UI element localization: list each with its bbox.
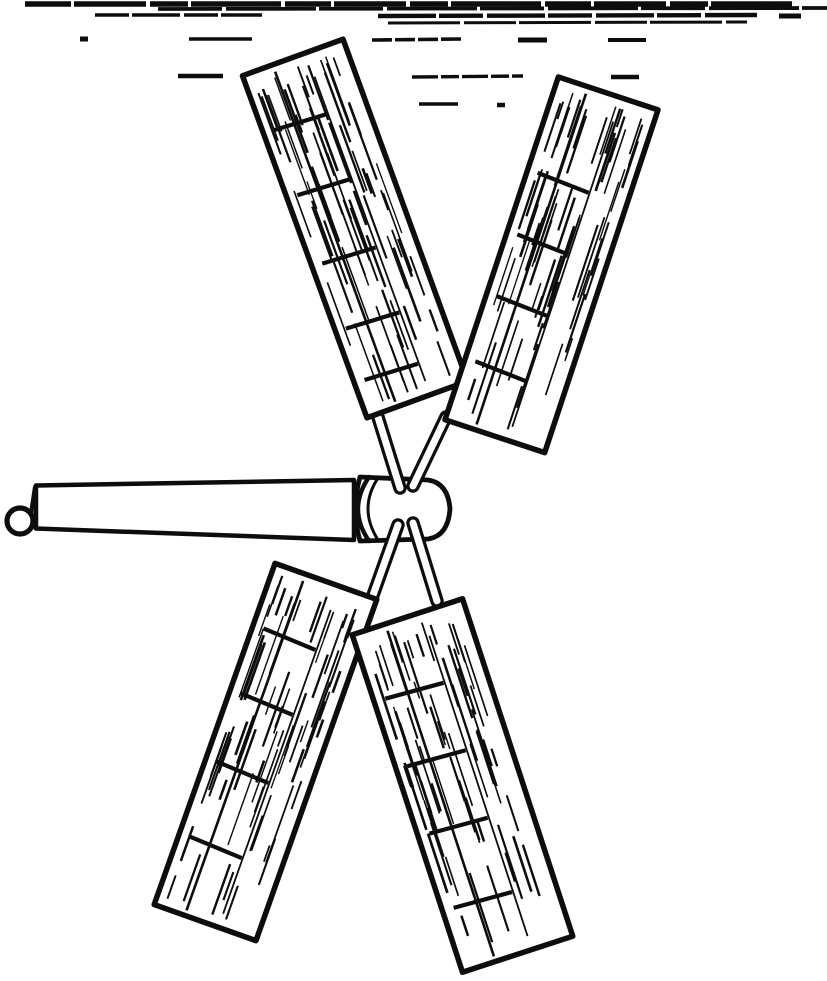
shaft-body xyxy=(36,480,354,540)
shaft-end-ring xyxy=(7,508,33,534)
shaft xyxy=(7,480,354,540)
windmill-engraving xyxy=(0,0,827,981)
illustration-canvas xyxy=(0,0,827,981)
